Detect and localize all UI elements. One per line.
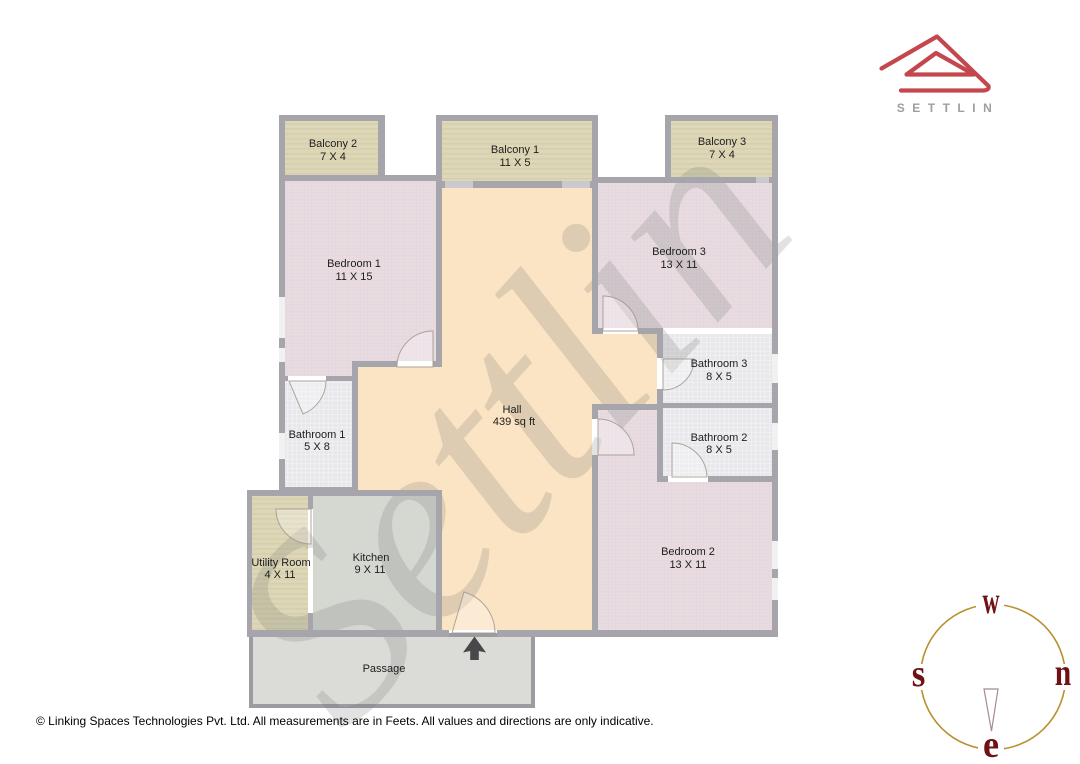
svg-text:9 X 11: 9 X 11 (355, 564, 386, 576)
svg-text:7 X 4: 7 X 4 (320, 151, 346, 163)
svg-text:Bathroom 3: Bathroom 3 (691, 358, 748, 370)
svg-text:13 X 11: 13 X 11 (669, 559, 706, 571)
svg-text:Hall: Hall (503, 404, 522, 416)
svg-text:Passage: Passage (363, 663, 406, 675)
svg-text:n: n (1055, 653, 1072, 694)
svg-text:e: e (983, 724, 999, 764)
svg-text:Bathroom 2: Bathroom 2 (691, 432, 748, 444)
svg-text:Bathroom 1: Bathroom 1 (289, 429, 346, 441)
svg-text:Bedroom 3: Bedroom 3 (652, 246, 706, 258)
svg-text:5 X 8: 5 X 8 (304, 441, 330, 453)
svg-text:Utility Room: Utility Room (251, 557, 310, 569)
svg-text:439 sq ft: 439 sq ft (493, 416, 535, 428)
svg-text:8 X 5: 8 X 5 (706, 444, 732, 456)
svg-text:13 X 11: 13 X 11 (660, 259, 697, 271)
svg-text:Bedroom 2: Bedroom 2 (661, 546, 715, 558)
svg-text:11 X 15: 11 X 15 (335, 271, 372, 283)
svg-text:Balcony 1: Balcony 1 (491, 144, 539, 156)
svg-text:Balcony 2: Balcony 2 (309, 138, 357, 150)
svg-text:7 X 4: 7 X 4 (709, 149, 735, 161)
svg-text:Kitchen: Kitchen (353, 552, 390, 564)
svg-text:© Linking Spaces Technologies: © Linking Spaces Technologies Pvt. Ltd. … (36, 714, 654, 728)
svg-text:s: s (912, 652, 926, 695)
svg-text:w: w (982, 579, 999, 621)
svg-text:8 X 5: 8 X 5 (706, 371, 732, 383)
svg-text:Balcony 3: Balcony 3 (698, 136, 746, 148)
svg-text:4 X 11: 4 X 11 (265, 569, 296, 581)
svg-text:11 X 5: 11 X 5 (500, 157, 531, 169)
svg-text:SETTLIN: SETTLIN (897, 101, 1000, 115)
svg-text:Bedroom 1: Bedroom 1 (327, 258, 381, 270)
